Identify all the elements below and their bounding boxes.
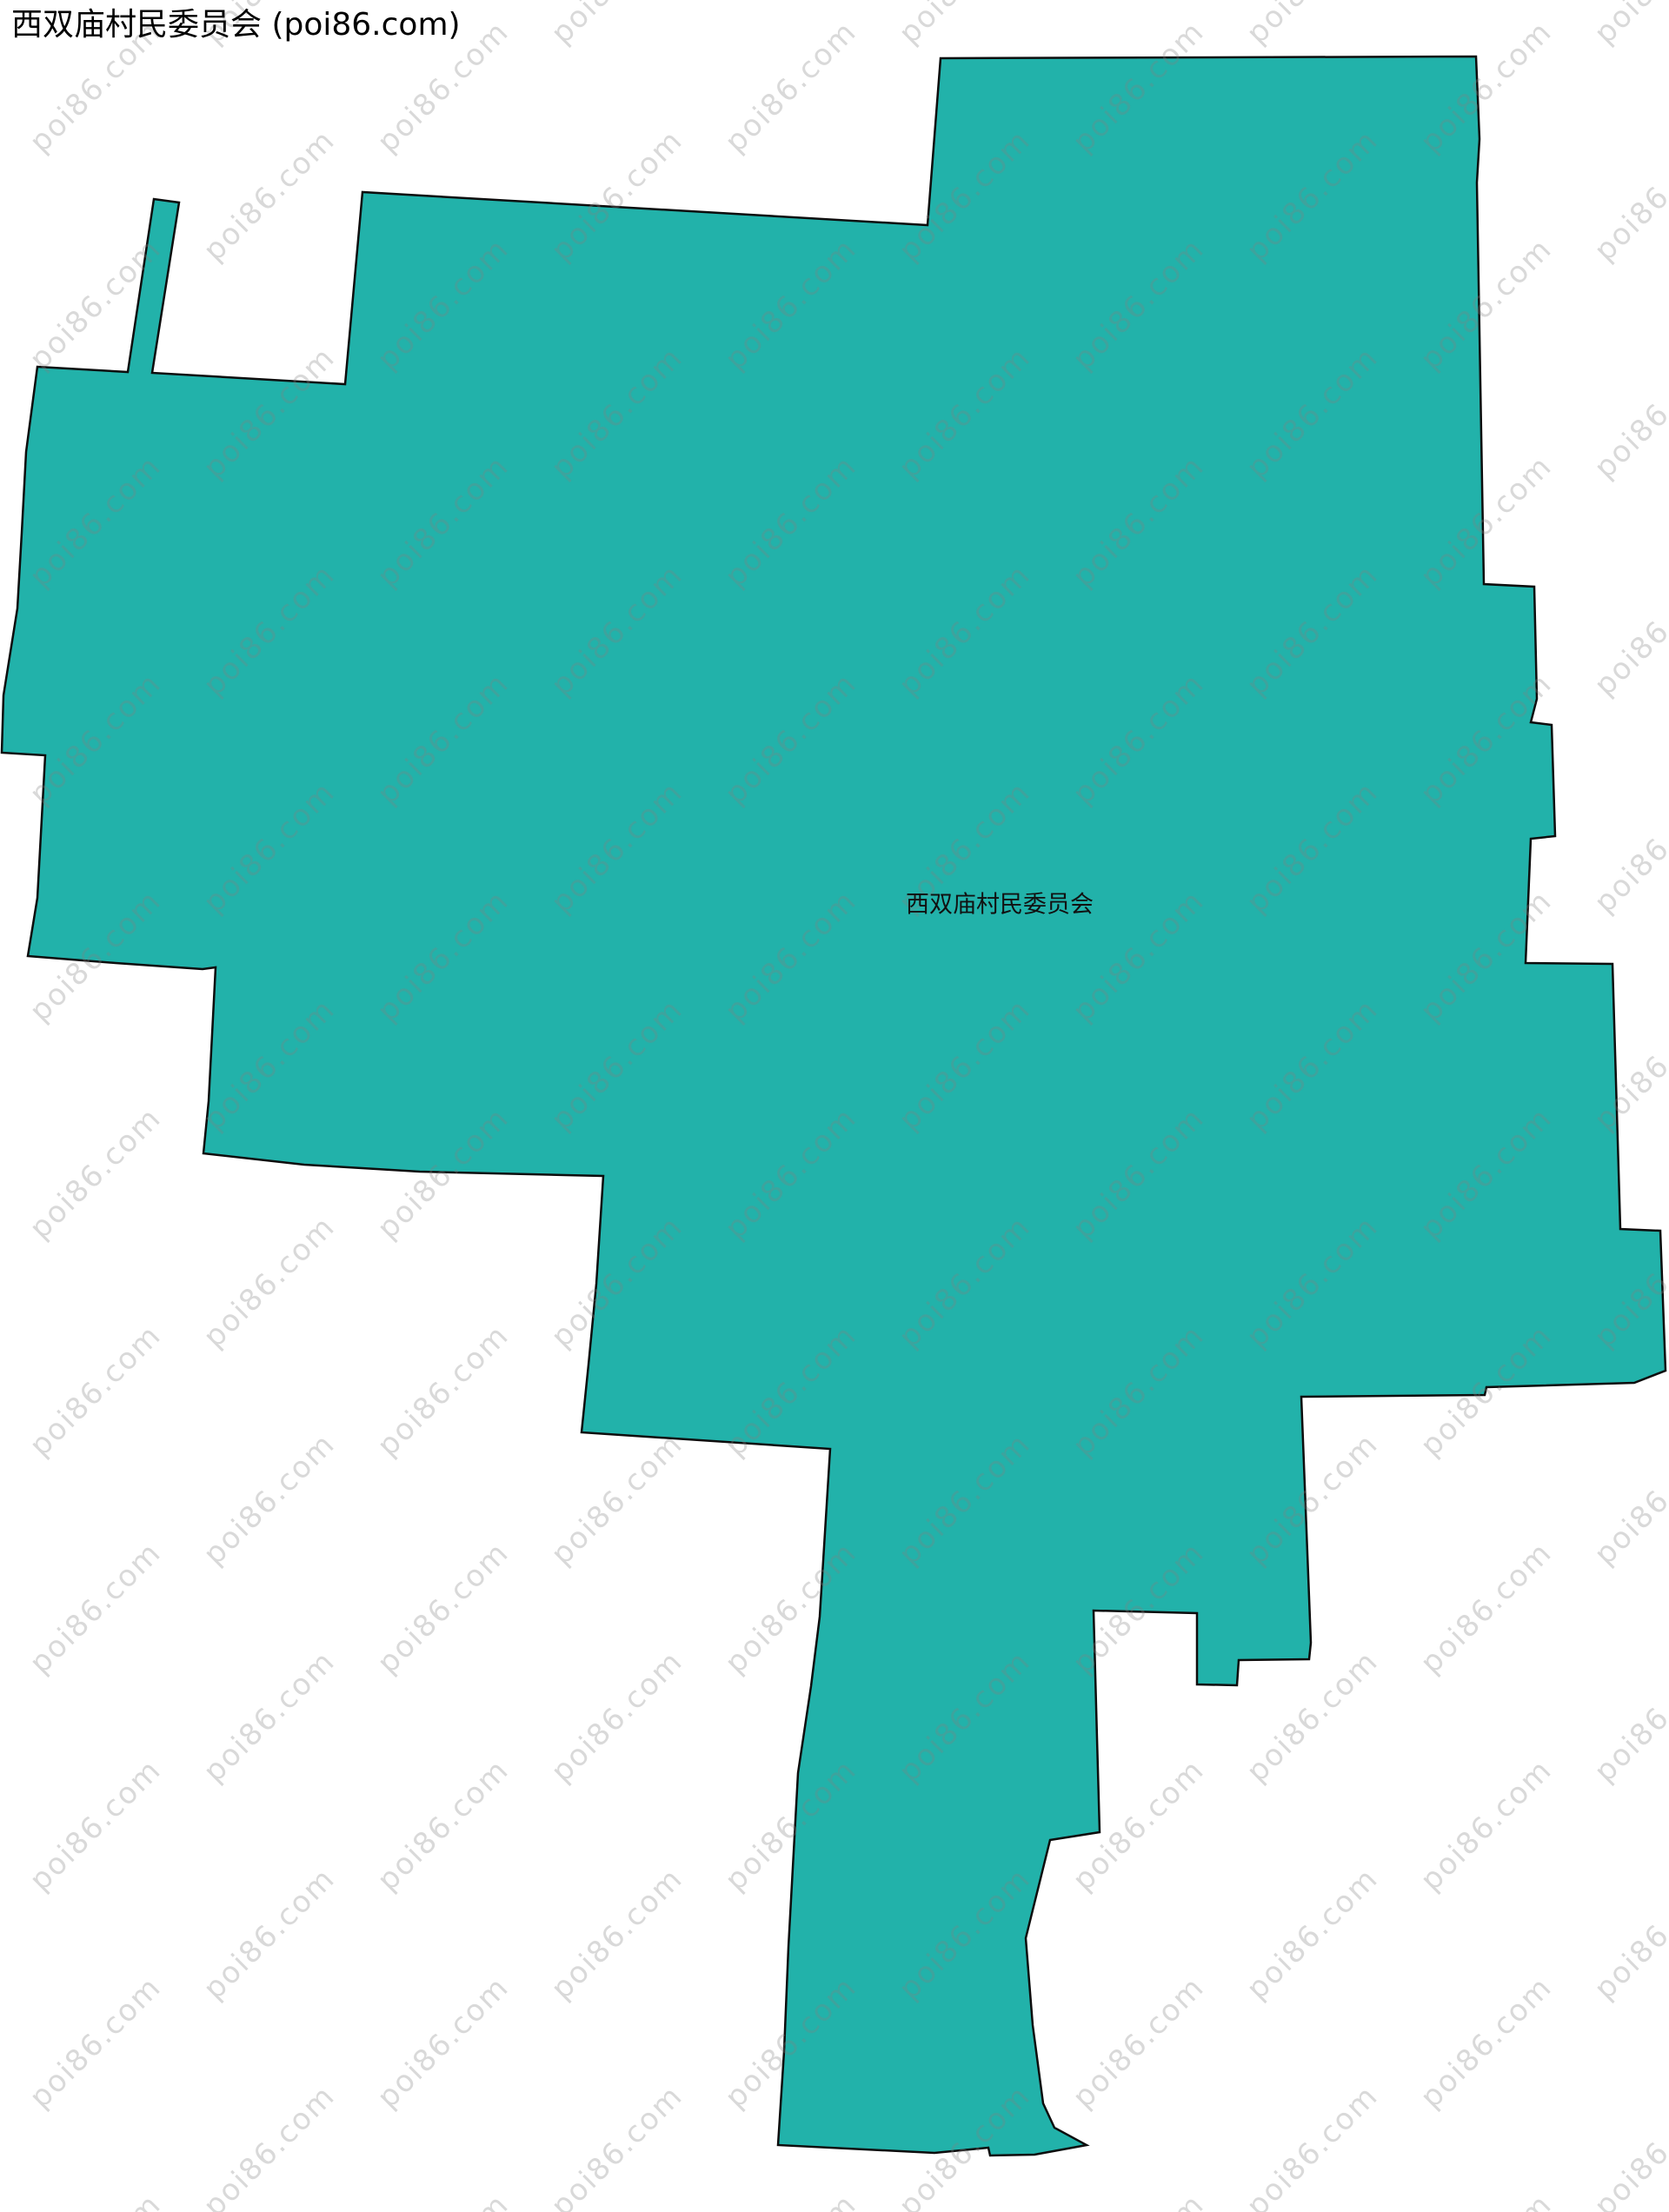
map-canvas (0, 0, 1669, 2212)
map-page: poi86.compoi86.compoi86.compoi86.compoi8… (0, 0, 1669, 2212)
region-label: 西双庙村民委员会 (906, 886, 1094, 920)
region-boundary-polygon (2, 56, 1666, 2156)
page-title: 西双庙村民委员会 (poi86.com) (11, 7, 461, 43)
